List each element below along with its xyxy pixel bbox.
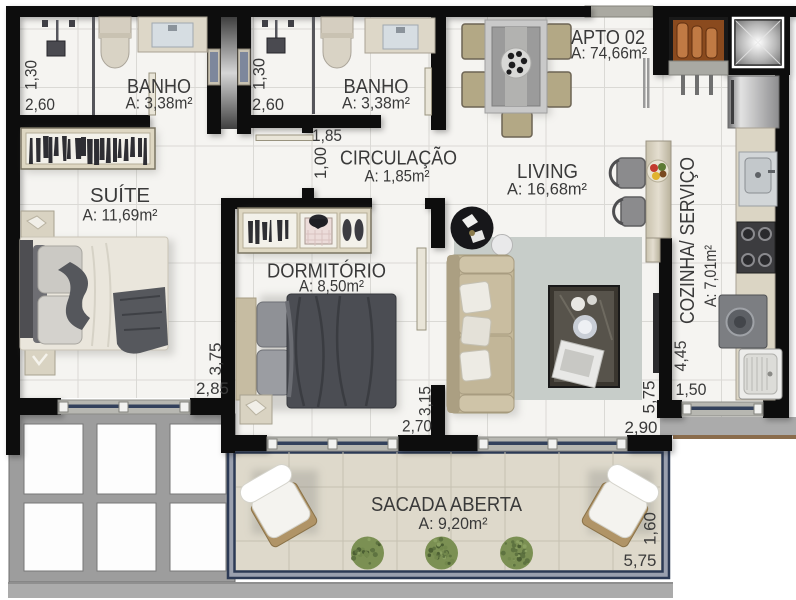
- svg-text:1,60: 1,60: [642, 512, 660, 545]
- svg-text:4,45: 4,45: [672, 341, 690, 372]
- svg-text:1,00: 1,00: [312, 147, 330, 179]
- svg-text:3,15: 3,15: [417, 386, 435, 416]
- svg-text:A: 8,50m²: A: 8,50m²: [299, 277, 364, 296]
- svg-text:1,85: 1,85: [312, 127, 342, 145]
- svg-text:2,60: 2,60: [252, 96, 284, 114]
- svg-text:SUÍTE: SUÍTE: [90, 184, 150, 207]
- svg-text:2,85: 2,85: [196, 380, 229, 398]
- svg-text:5,75: 5,75: [641, 381, 659, 414]
- svg-text:2,70: 2,70: [402, 418, 432, 436]
- svg-text:A: 3,38m²: A: 3,38m²: [126, 94, 193, 113]
- svg-text:SACADA ABERTA: SACADA ABERTA: [371, 493, 522, 516]
- svg-text:1,50: 1,50: [676, 381, 707, 399]
- svg-text:A: 7,01m²: A: 7,01m²: [701, 245, 720, 307]
- svg-text:2,60: 2,60: [25, 96, 55, 114]
- svg-text:2,90: 2,90: [625, 419, 658, 437]
- svg-text:3,75: 3,75: [207, 343, 225, 376]
- svg-text:1,30: 1,30: [23, 60, 41, 90]
- svg-text:A: 11,69m²: A: 11,69m²: [83, 206, 158, 225]
- svg-text:5,75: 5,75: [624, 552, 657, 570]
- svg-text:A: 1,85m²: A: 1,85m²: [365, 167, 430, 186]
- svg-text:A: 9,20m²: A: 9,20m²: [419, 514, 488, 533]
- svg-text:COZINHA/ SERVIÇO: COZINHA/ SERVIÇO: [676, 157, 699, 324]
- svg-text:A: 3,38m²: A: 3,38m²: [342, 94, 410, 113]
- svg-text:A: 74,66m²: A: 74,66m²: [571, 44, 647, 63]
- svg-text:1,30: 1,30: [251, 58, 269, 90]
- svg-text:A: 16,68m²: A: 16,68m²: [507, 180, 587, 199]
